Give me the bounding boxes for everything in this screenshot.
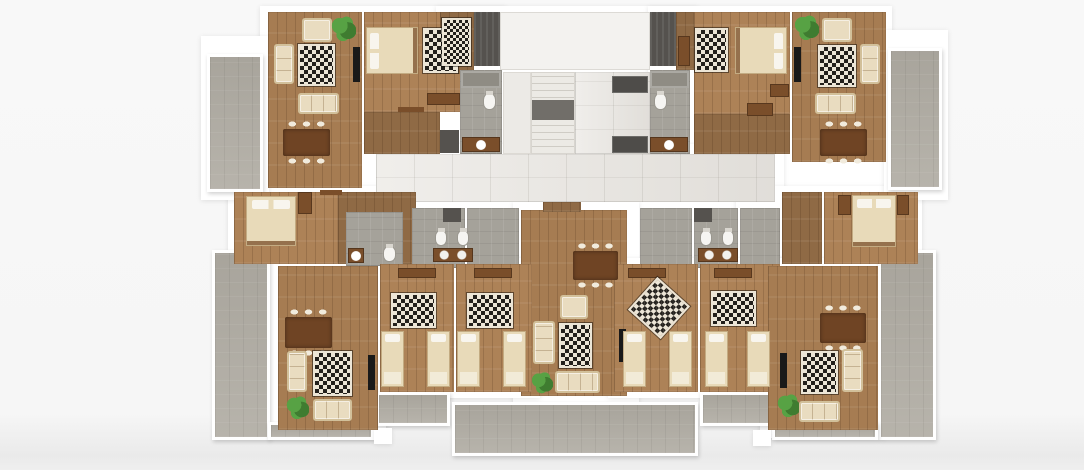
bed-bl-1a xyxy=(381,331,404,387)
toilet-top-right xyxy=(654,93,667,110)
wardrobe-entry-top-right xyxy=(678,36,690,66)
hall-top-left xyxy=(364,112,440,154)
door-mid-left xyxy=(320,190,342,195)
bed-mid-left xyxy=(246,196,296,246)
toilet-right-1 xyxy=(700,230,712,246)
hall-mid-right xyxy=(740,208,780,268)
shaft-left xyxy=(474,12,500,66)
toilet-top-left xyxy=(483,93,496,110)
rug-bl-1 xyxy=(391,293,436,328)
nightstand-mid-right-1 xyxy=(838,195,851,215)
shower-top-right xyxy=(650,71,689,88)
balcony-right xyxy=(888,48,942,190)
stair-landing xyxy=(532,100,574,120)
vanity-top-right xyxy=(650,137,688,152)
bed-mid-right xyxy=(852,195,896,247)
sofa-side-center xyxy=(533,321,555,364)
dresser-top-left xyxy=(427,93,460,105)
dining-table-top-left xyxy=(283,129,330,156)
bed-bl-2a xyxy=(457,331,480,387)
nightstand-mid-right-2 xyxy=(897,195,909,215)
dresser-br-2 xyxy=(714,268,752,278)
bed-bl-2b xyxy=(503,331,526,387)
tv-bottom-right xyxy=(780,353,787,388)
sofa-bottom-right xyxy=(799,401,840,422)
dresser-top-right xyxy=(770,84,789,97)
rug-bedroom-top-right xyxy=(695,28,728,72)
entry-center xyxy=(543,202,581,212)
dining-table-center xyxy=(573,251,618,280)
rug-living-bottom-left xyxy=(313,351,352,396)
shaft-right xyxy=(650,12,676,66)
plant-top-right xyxy=(794,14,819,41)
terrace-pillar-right xyxy=(753,430,771,446)
shower-top-left xyxy=(461,71,501,88)
sofa-side-top-right xyxy=(860,44,880,84)
rug-living-bottom-right xyxy=(801,351,838,394)
tv-top-left xyxy=(353,47,360,82)
vanity-right-double xyxy=(698,248,738,262)
balcony-bedrooms-right xyxy=(700,392,774,426)
armchair-top-left xyxy=(302,18,332,42)
terrace-bottom-right xyxy=(878,250,936,440)
sofa-side-bottom-left xyxy=(287,351,307,392)
toilet-mid-left xyxy=(383,246,396,262)
plant-bottom-right xyxy=(777,393,800,418)
armchair-top-right xyxy=(822,18,852,42)
vanity-left-double xyxy=(433,248,473,262)
rug-living-top-right xyxy=(818,45,856,87)
toilet-right-2 xyxy=(722,230,734,246)
terrace-bottom-left xyxy=(212,250,270,440)
rug-br-2 xyxy=(711,291,756,326)
bed-br-1a xyxy=(623,331,646,387)
corridor xyxy=(376,154,775,202)
sofa-center xyxy=(555,371,600,393)
terrace-pillar-left xyxy=(374,428,392,444)
elevator-bottom xyxy=(612,136,648,153)
bed-bl-1b xyxy=(427,331,450,387)
wardrobe-mid-left xyxy=(298,192,312,214)
bathroom-right-1 xyxy=(640,208,692,268)
plant-bottom-left xyxy=(286,395,309,420)
door-top-left xyxy=(398,107,424,112)
dining-table-top-right xyxy=(820,129,867,156)
tv-bottom-left xyxy=(368,355,375,390)
bed-top-left xyxy=(366,27,418,74)
rug-entry-top-left xyxy=(442,18,471,66)
vanity-top-left xyxy=(462,137,500,152)
floorplan-stage xyxy=(0,0,1084,470)
toilet-left-2 xyxy=(457,230,469,246)
rug-bl-2 xyxy=(467,293,513,328)
hall-table-top-right xyxy=(747,103,773,116)
dining-table-bottom-right xyxy=(820,313,866,343)
terrace-center xyxy=(452,402,698,456)
rug-center xyxy=(559,323,592,368)
sofa-side-top-left xyxy=(274,44,294,84)
bed-br-2b xyxy=(747,331,770,387)
vanity-mid-left xyxy=(348,248,364,263)
dining-table-bottom-left xyxy=(285,317,332,348)
bathroom-left-2 xyxy=(467,208,519,268)
closet-baths-left xyxy=(443,208,461,222)
stair-side xyxy=(503,72,531,154)
balcony-left xyxy=(207,54,263,192)
bed-br-1b xyxy=(669,331,692,387)
open-room xyxy=(500,12,650,70)
bed-top-right xyxy=(735,27,787,74)
rug-living-top-left xyxy=(298,44,335,86)
dresser-bl-2 xyxy=(474,268,512,278)
sofa-top-left xyxy=(298,93,339,114)
plant-top-left xyxy=(331,15,356,42)
sofa-side-bottom-right xyxy=(842,349,863,392)
sofa-bottom-left xyxy=(313,399,352,421)
hall-right xyxy=(782,192,822,264)
tv-top-right xyxy=(794,47,801,82)
dresser-bl-1 xyxy=(398,268,436,278)
bed-br-2a xyxy=(705,331,728,387)
toilet-left-1 xyxy=(435,230,447,246)
closet-baths-right xyxy=(694,208,712,222)
hall-top-right xyxy=(694,114,790,154)
elevator-top xyxy=(612,76,648,93)
sofa-top-right xyxy=(815,93,856,114)
armchair-center xyxy=(560,295,588,319)
closet-top-left xyxy=(440,130,459,153)
dresser-br-1 xyxy=(628,268,666,278)
balcony-bedrooms-left xyxy=(376,392,450,426)
plant-center xyxy=(531,371,553,394)
